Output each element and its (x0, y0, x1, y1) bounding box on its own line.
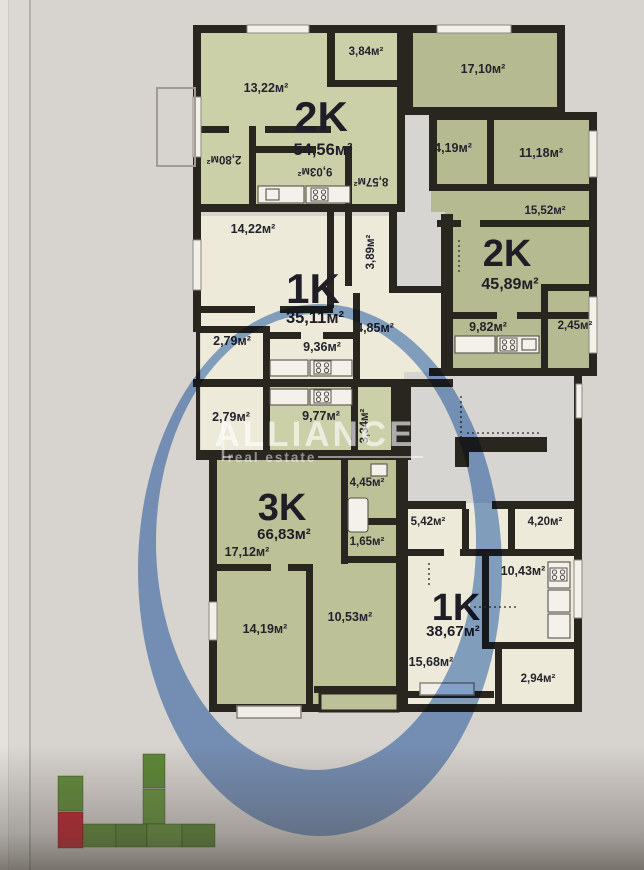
bath-fixture (348, 498, 368, 532)
floorplan-photo: 13,22м² 3,84м² 17,10м² 2,80м² 9,03м² 8,5… (0, 0, 644, 870)
apartment-type-label: 2K (294, 93, 348, 140)
room-area-label: 10,53м² (328, 610, 373, 624)
window (247, 25, 309, 33)
watermark-brand: ALLIANCE (215, 415, 416, 454)
room-area-label: 14,22м² (231, 222, 276, 236)
loggia (320, 693, 398, 711)
stove-icon (311, 188, 328, 201)
kitchen-counter (270, 360, 308, 376)
window (576, 384, 582, 418)
window (209, 602, 217, 640)
room-area-label: 3,84м² (349, 46, 384, 58)
room-area-label: 15,52м² (524, 205, 565, 217)
apartment-type-label: 3K (258, 487, 307, 529)
room-area-label: 8,57м² (353, 175, 388, 187)
room-area-label: 1,65м² (350, 536, 385, 548)
balcony-sill (237, 706, 301, 718)
window (574, 560, 582, 618)
room-area-label: 3,89м² (365, 234, 377, 269)
watermark-tagline: real estate (228, 450, 317, 465)
photo-shadow (0, 745, 644, 870)
kitchen-counter (270, 389, 308, 405)
room-area-label: 2,94м² (521, 673, 556, 685)
kitchen-counter (548, 590, 570, 612)
stove-icon (314, 361, 331, 374)
room-area-label: 2,80м² (206, 153, 241, 165)
room-area-label: 4,19м² (434, 141, 472, 155)
apartment-type-label: 2K (483, 233, 532, 275)
room-area-label: 13,22м² (244, 81, 289, 95)
page-edge-strip (0, 0, 9, 870)
room-area-label: 5,42м² (411, 516, 446, 528)
stove-icon (550, 568, 567, 581)
kitchen-counter (455, 336, 495, 353)
room-area-label: 4,45м² (350, 477, 385, 489)
apartment-area-label: 45,89м² (481, 276, 538, 293)
window (193, 240, 201, 290)
kitchen-counter (548, 614, 570, 638)
floor-plan-svg: 13,22м² 3,84м² 17,10м² 2,80м² 9,03м² 8,5… (0, 0, 644, 870)
window (589, 131, 597, 177)
bath-fixture (371, 464, 387, 476)
room-area-label: 11,18м² (519, 146, 563, 160)
room-area-label: 17,12м² (225, 545, 270, 559)
room-area-label: 2,45м² (558, 320, 593, 332)
room-area-label: 15,68м² (409, 655, 454, 669)
sink-icon (266, 189, 279, 200)
stove-icon (314, 390, 331, 403)
room-area-label: 9,82м² (469, 320, 507, 334)
stove-icon (500, 338, 517, 351)
sink-icon (522, 339, 536, 350)
corridor-gap (405, 118, 431, 214)
kitchen-counter (258, 186, 304, 203)
watermark: ALLIANCE real estate (215, 415, 423, 465)
apartment-area-label: 54,56м² (294, 141, 353, 159)
room-area-label: 9,03м² (297, 165, 332, 177)
room-area-label: 9,36м² (303, 340, 341, 354)
window (437, 25, 511, 33)
room-area-label: 10,43м² (501, 564, 546, 578)
apartment-area-label: 66,83м² (257, 526, 311, 543)
room-area-label: 17,10м² (461, 62, 506, 76)
room-area-label: 14,19м² (243, 622, 288, 636)
room-area-label: 4,20м² (528, 516, 563, 528)
